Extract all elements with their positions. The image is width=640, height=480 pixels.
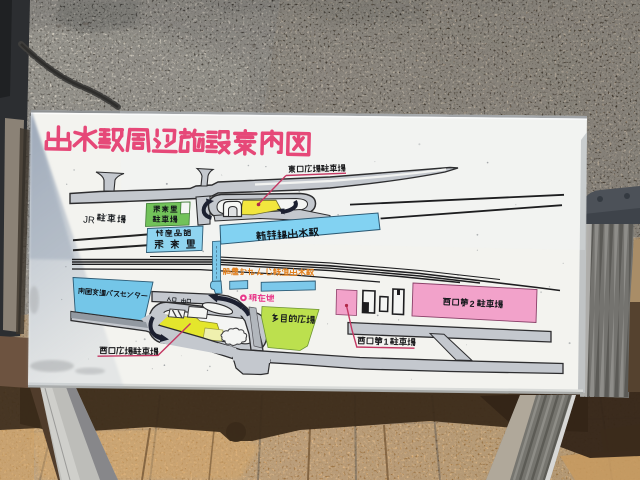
svg-text:1: 1 <box>383 337 388 347</box>
svg-text:JR: JR <box>83 215 95 227</box>
svg-text:2: 2 <box>469 299 474 309</box>
